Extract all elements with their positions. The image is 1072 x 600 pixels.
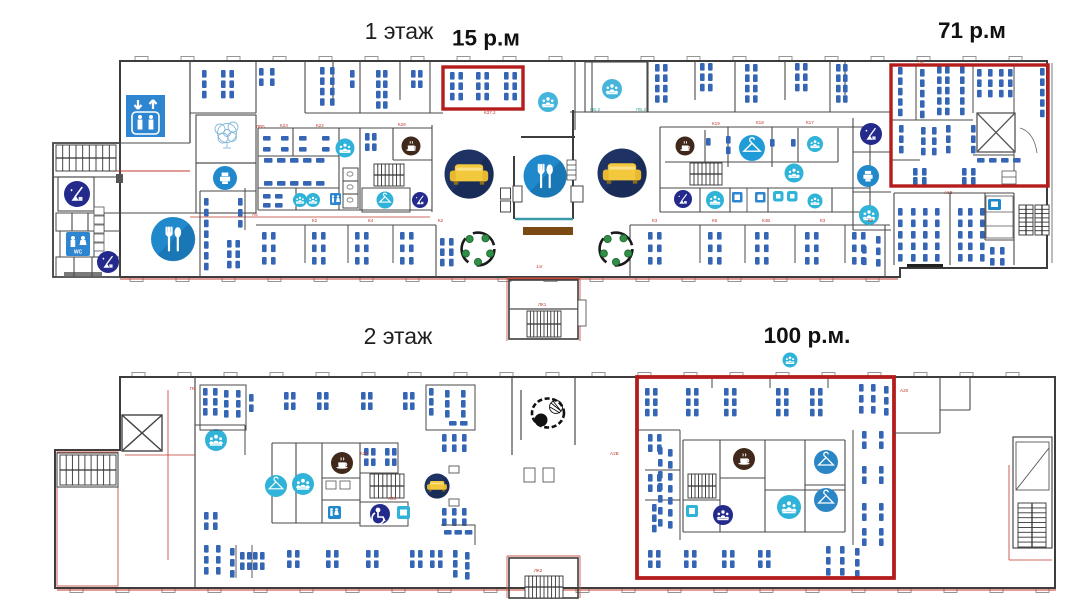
- svg-text:К26: К26: [398, 122, 406, 127]
- svg-text:К19: К19: [712, 121, 720, 126]
- svg-text:К4: К4: [368, 218, 374, 223]
- svg-text:К2: К2: [438, 218, 444, 223]
- svg-text:К4Б: К4Б: [762, 218, 770, 223]
- svg-text:К23: К23: [280, 123, 288, 128]
- svg-text:71 р.м: 71 р.м: [938, 18, 1006, 43]
- svg-text:ЛК2: ЛК2: [534, 568, 543, 573]
- svg-text:К18: К18: [756, 120, 764, 125]
- svg-text:К3: К3: [820, 218, 826, 223]
- svg-text:ПБ.2: ПБ.2: [636, 107, 647, 112]
- svg-text:К22: К22: [316, 123, 324, 128]
- svg-text:К5: К5: [712, 218, 718, 223]
- svg-text:К3: К3: [652, 218, 658, 223]
- svg-text:ЛК1: ЛК1: [538, 302, 547, 307]
- svg-text:К2: К2: [868, 218, 874, 223]
- svg-text:1 этаж: 1 этаж: [365, 18, 434, 44]
- svg-text:15 р.м: 15 р.м: [452, 26, 520, 51]
- svg-text:К37.2: К37.2: [484, 110, 496, 115]
- svg-text:А2б: А2б: [388, 496, 397, 501]
- svg-text:2 этаж: 2 этаж: [364, 323, 433, 349]
- svg-text:А2: А2: [918, 59, 924, 64]
- svg-text:А2Б: А2Б: [610, 451, 619, 456]
- svg-text:100 р.м.: 100 р.м.: [764, 323, 851, 348]
- svg-text:ПБ.2: ПБ.2: [590, 107, 601, 112]
- svg-text:А20: А20: [900, 388, 909, 393]
- svg-text:1эт: 1эт: [536, 264, 544, 269]
- svg-text:А5: А5: [252, 212, 258, 217]
- svg-text:П6: П6: [190, 386, 196, 391]
- svg-text:WC: WC: [74, 250, 83, 256]
- svg-text:ЛВ5: ЛВ5: [256, 124, 265, 129]
- svg-text:К2: К2: [312, 218, 318, 223]
- svg-text:К17: К17: [806, 120, 814, 125]
- svg-text:К25: К25: [360, 451, 368, 456]
